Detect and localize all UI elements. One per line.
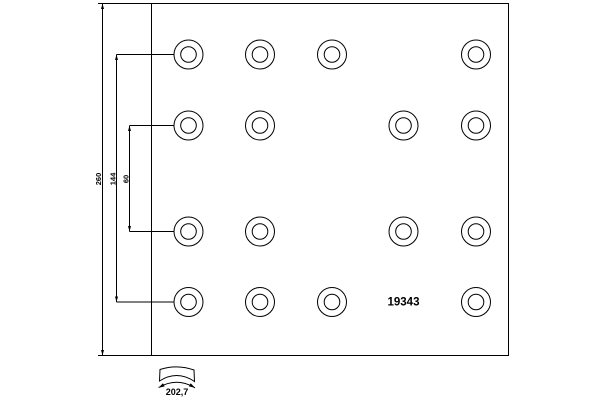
svg-text:260: 260 <box>94 173 103 186</box>
svg-text:19343: 19343 <box>388 297 420 309</box>
svg-text:60: 60 <box>121 175 130 183</box>
svg-text:144: 144 <box>108 172 117 185</box>
svg-text:202,7: 202,7 <box>166 387 189 397</box>
